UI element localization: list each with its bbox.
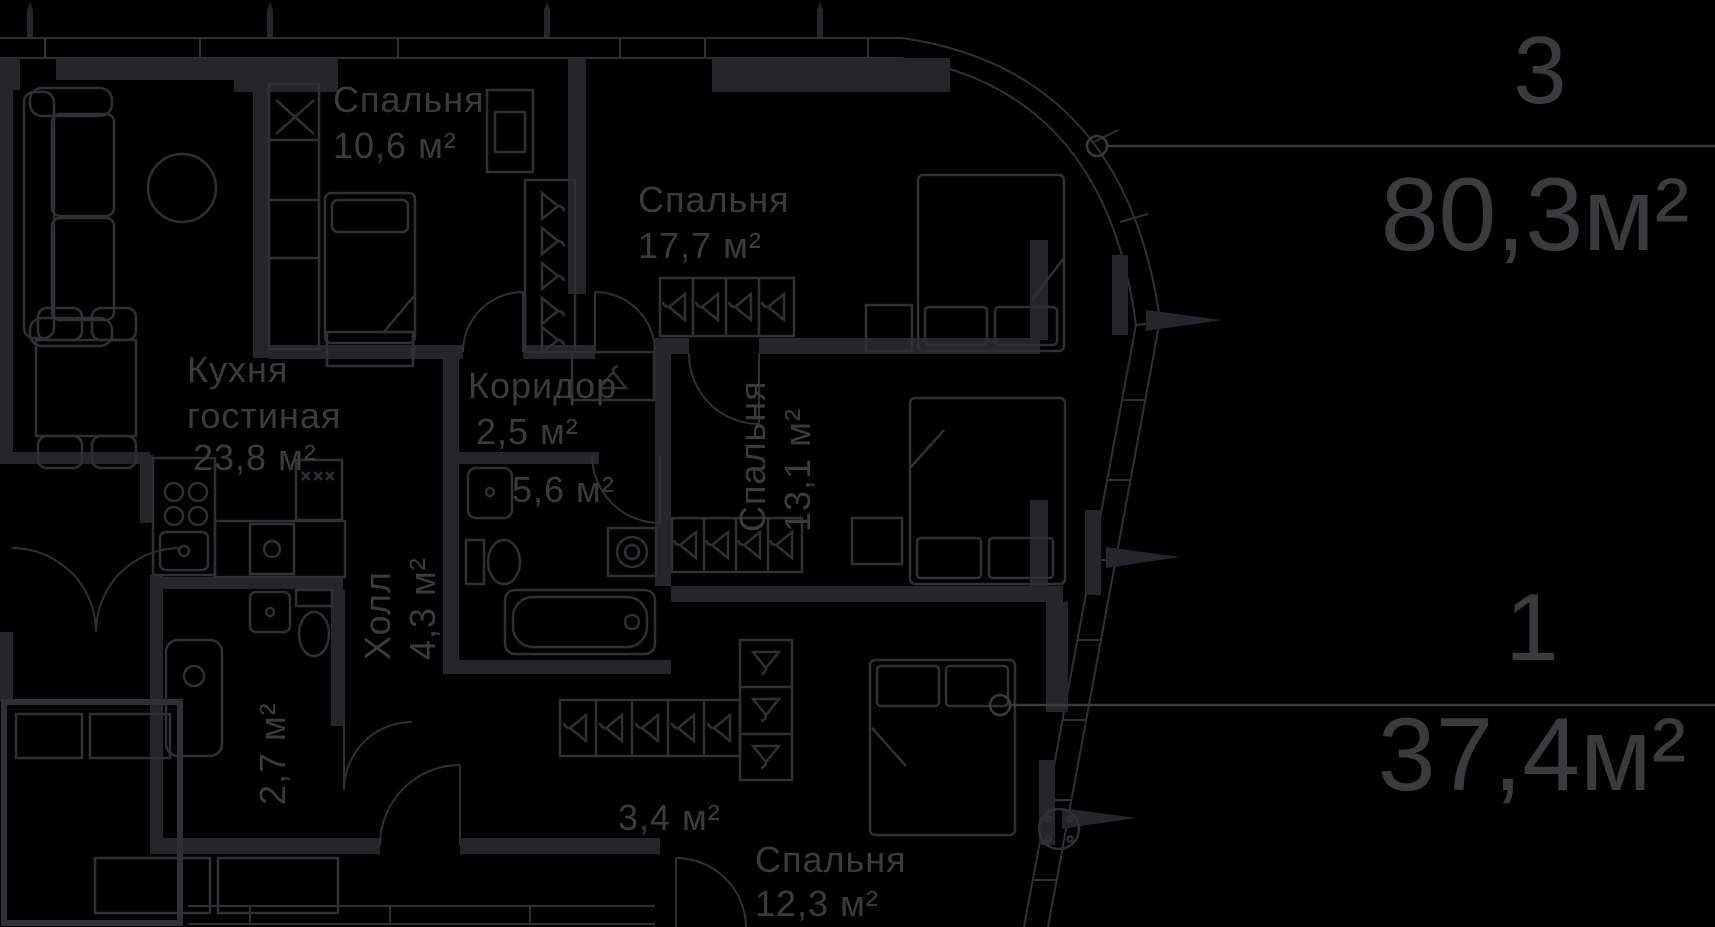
room-area-wardrobe: 3,4 м² (618, 797, 721, 838)
coffee-table (148, 154, 216, 222)
room-area-bedroom1: 10,6 м² (333, 125, 457, 166)
kitchen-sink (160, 532, 208, 570)
apartment-1-number: 1 (1505, 574, 1558, 681)
room-area-wc: 2,7 м² (252, 702, 293, 805)
room-label-hall: Холл (357, 571, 398, 660)
stove (165, 483, 207, 525)
door-bedroom4 (676, 858, 746, 927)
facade-windows (0, 2, 1222, 927)
washing-machine (608, 528, 656, 576)
wc-sink (250, 592, 290, 632)
room-area-bedroom2: 17,7 м² (638, 225, 762, 266)
closet-hangers (525, 180, 575, 353)
room-label-corridor: Коридор (468, 365, 617, 406)
door-wc (344, 722, 412, 790)
apartment-3-annotation[interactable]: 3 80,3м² (1087, 17, 1715, 273)
room-area-hall: 4,3 м² (402, 557, 443, 660)
apartment-1-area: 37,4м² (1378, 697, 1687, 813)
room-area-corridor: 2,5 м² (476, 411, 579, 452)
wardrobe-shelves (269, 84, 319, 349)
dining-set (36, 308, 136, 468)
room-label-bedroom1: Спальня (333, 79, 485, 120)
room-label-kitchen: Кухня (187, 349, 288, 390)
room-label-bedroom4: Спальня (755, 839, 907, 880)
bathroom-sink (468, 468, 512, 518)
room-area-bedroom3: 13,1 м² (777, 408, 818, 532)
room-label-bedroom2: Спальня (638, 179, 790, 220)
floor-plan: Спальня 10,6 м² Спальня 17,7 м² Кухня го… (0, 0, 1715, 927)
door-bedroom1 (463, 292, 523, 352)
room-label-kitchen-2: гостиная (187, 395, 341, 436)
door-hall (380, 765, 460, 845)
room-label-bedroom3: Спальня (732, 380, 773, 532)
wardrobe-hangers-bedroom2 (660, 278, 794, 336)
apartment-1-annotation[interactable]: 1 37,4м² (990, 574, 1715, 813)
door-bedroom2 (595, 292, 655, 352)
bed-single (325, 193, 415, 366)
wc-toilet (296, 590, 332, 656)
room-area-bedroom4: 12,3 м² (755, 883, 879, 924)
apartment-3-number: 3 (1513, 17, 1566, 124)
desk (487, 90, 533, 172)
bed-double-4 (870, 660, 1015, 835)
room-area-bathroom: 5,6 м² (512, 469, 615, 510)
apartment-3-area: 80,3м² (1381, 157, 1690, 273)
room-area-kitchen: 23,8 м² (193, 437, 317, 478)
bathtub (505, 590, 655, 654)
facade-spike-icon (27, 2, 823, 38)
leader-dot (1087, 136, 1107, 156)
toilet (466, 540, 520, 584)
shower-tray (166, 640, 222, 756)
